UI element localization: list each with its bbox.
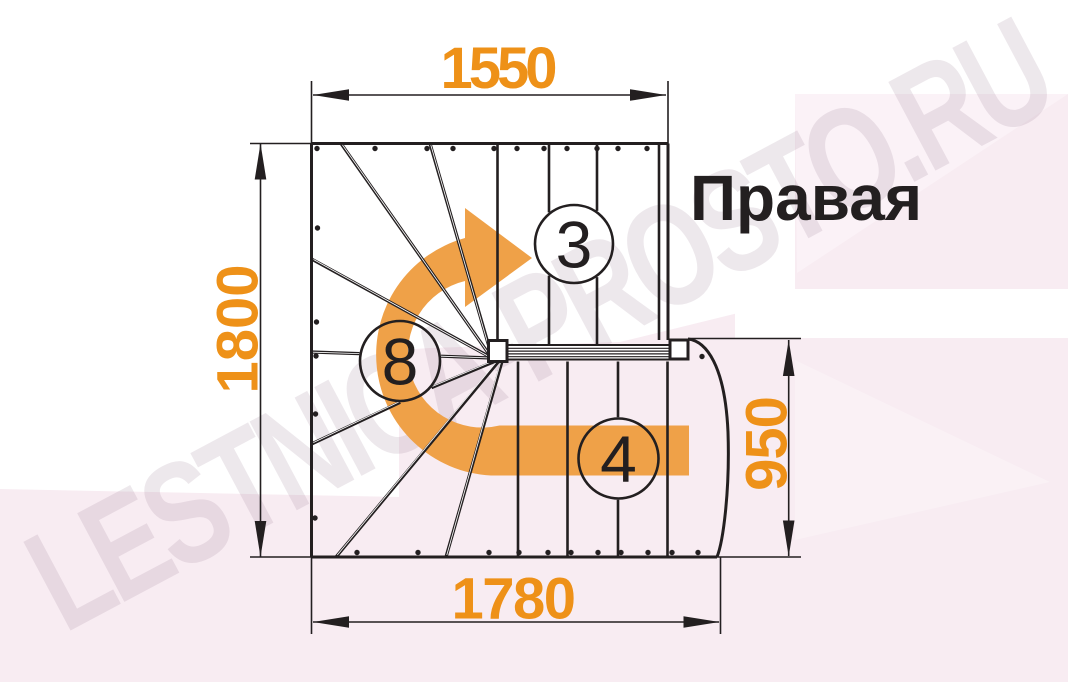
svg-text:1780: 1780 (451, 567, 574, 632)
svg-text:Правая: Правая (690, 162, 922, 234)
svg-text:950: 950 (735, 397, 800, 491)
svg-text:1550: 1550 (440, 36, 555, 101)
svg-text:4: 4 (600, 422, 637, 496)
svg-text:1800: 1800 (206, 264, 271, 393)
svg-text:8: 8 (382, 325, 419, 399)
svg-text:3: 3 (556, 208, 593, 282)
